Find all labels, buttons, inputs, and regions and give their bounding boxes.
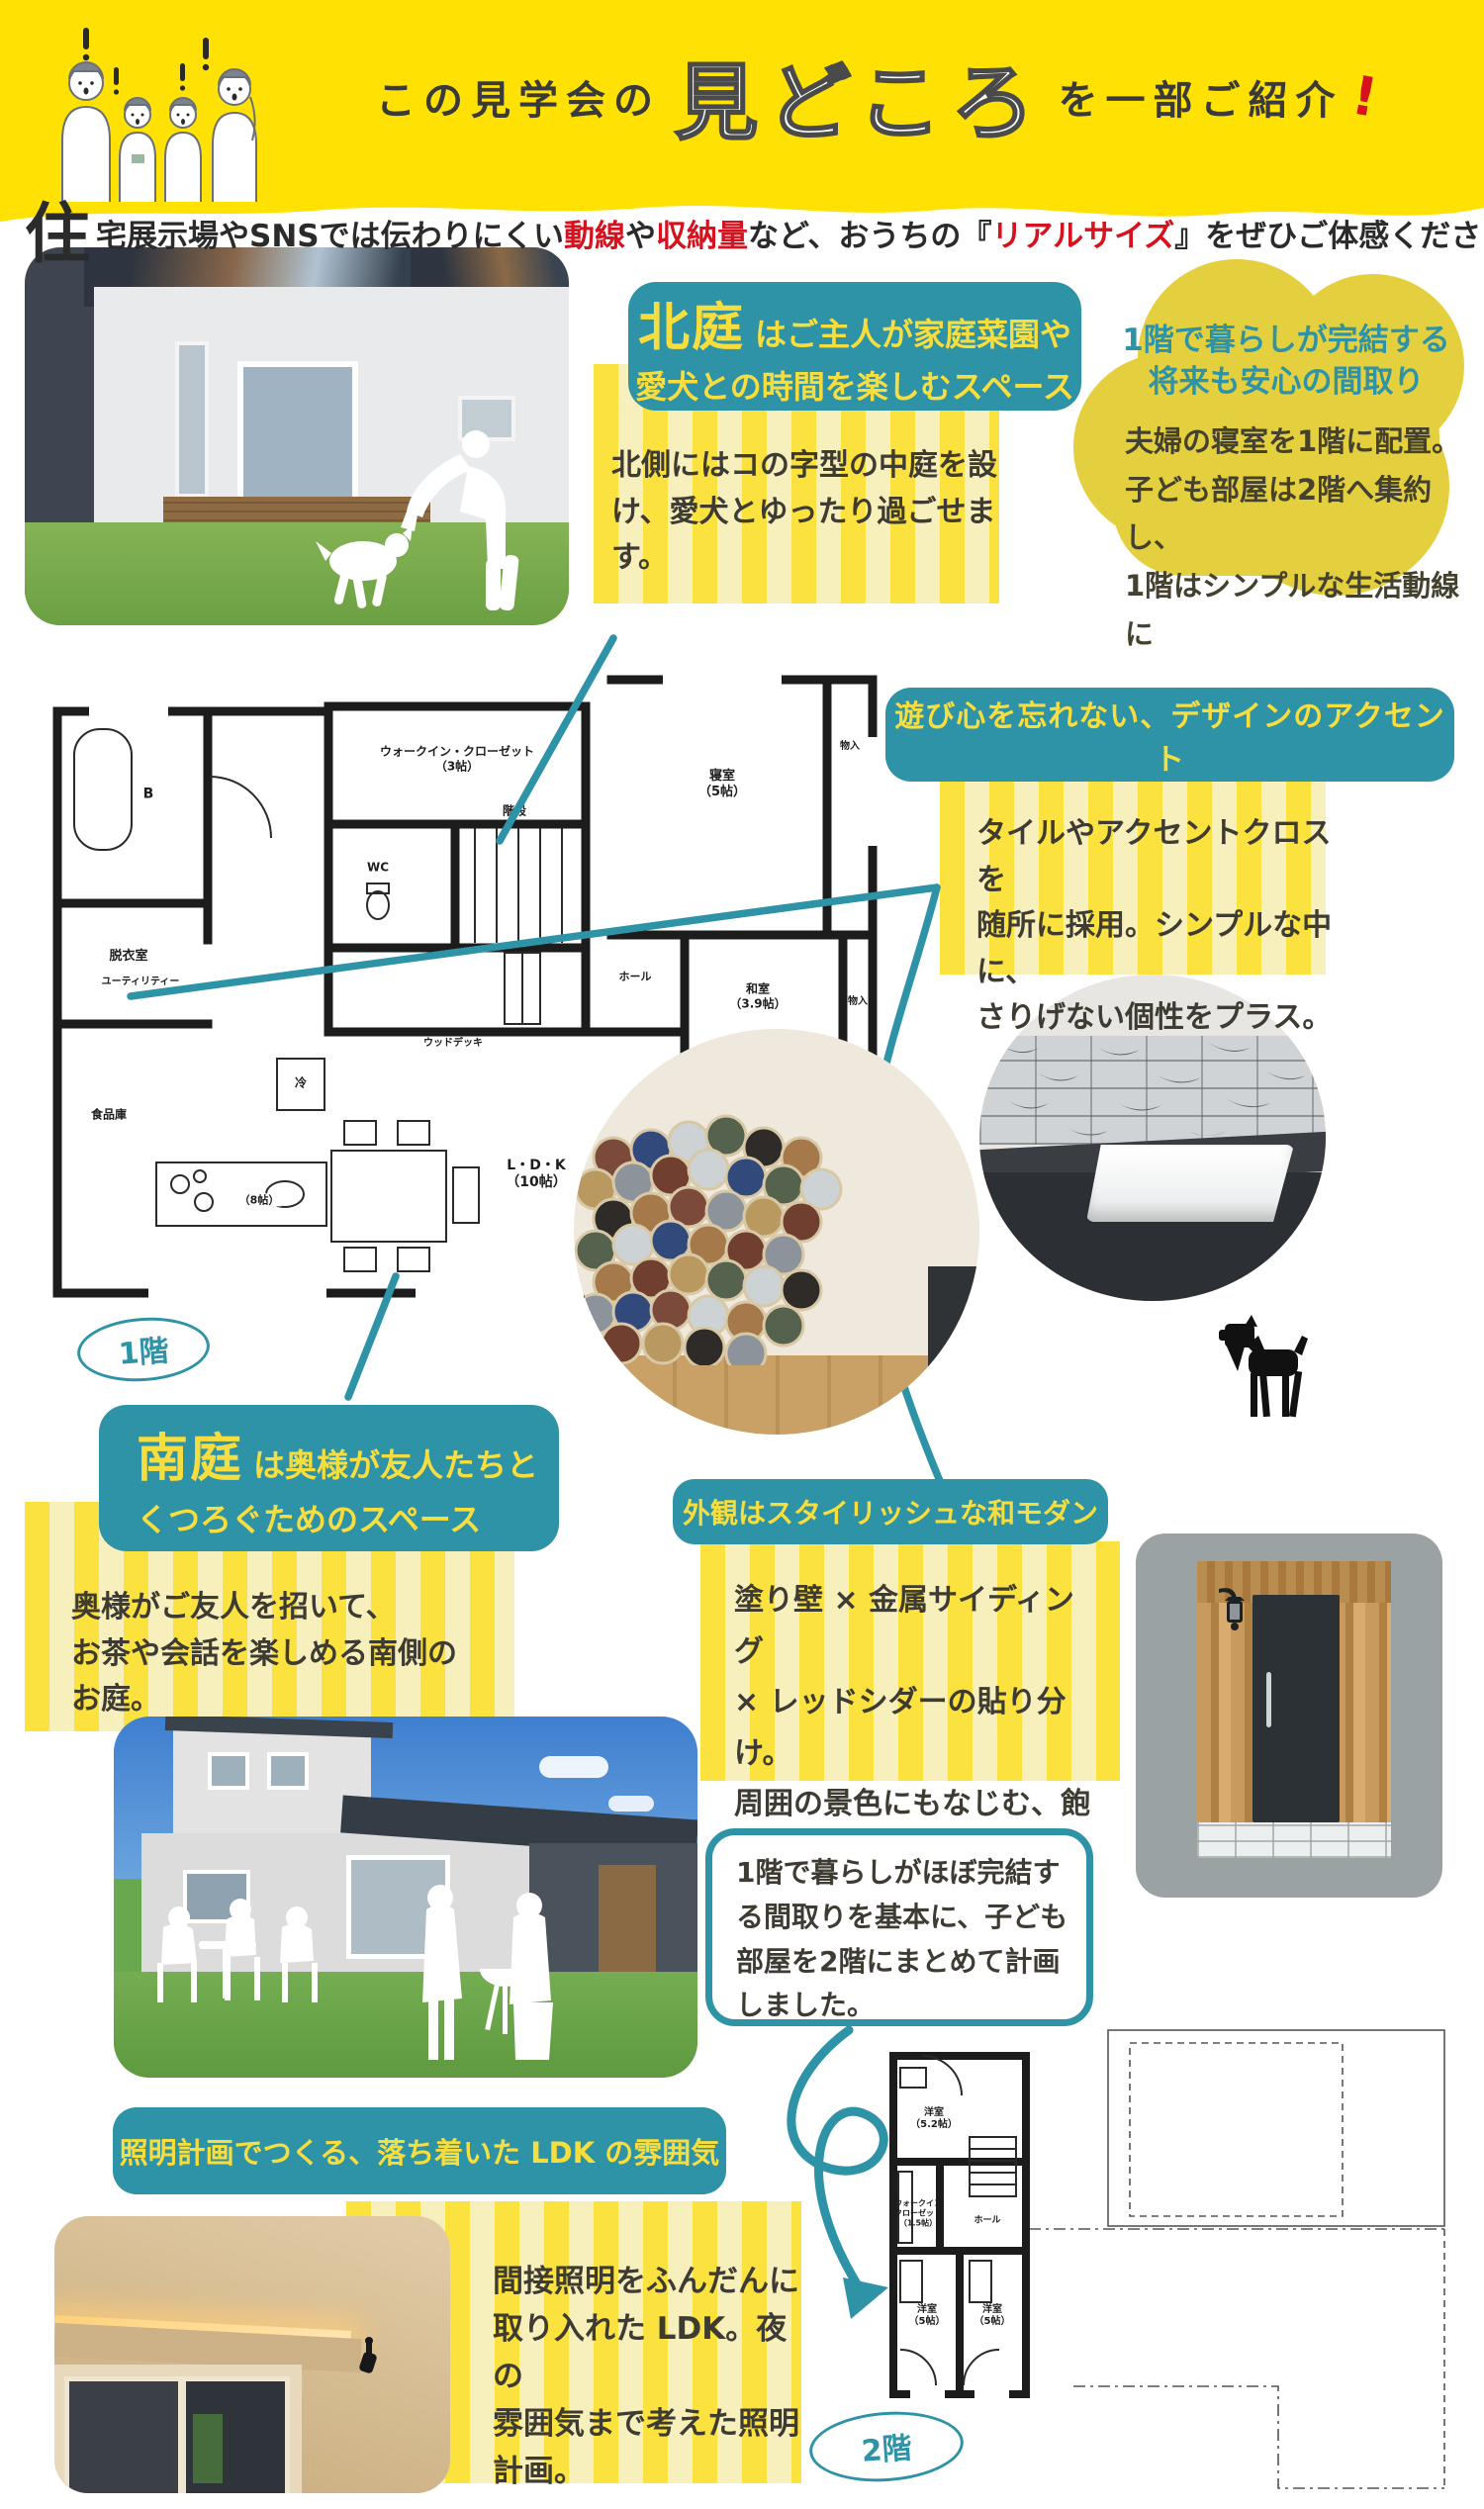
flyer-page: 1階で暮らしが完結する 将来も安心の間取り 夫婦の寝室を1階に配置。 子ども部屋…	[0, 0, 1484, 2509]
ldk-photo	[54, 2216, 450, 2493]
north-garden-title-line2: 愛犬との時間を楽しむスペース	[635, 362, 1074, 408]
room-label: ウォークイン クローゼット （1.5帖）	[894, 2198, 942, 2227]
room-label: ユーティリティー	[102, 976, 180, 988]
window	[267, 1752, 309, 1790]
room-label: ウォークイン・クローゼット （3帖）	[380, 744, 534, 773]
mosaic-tile-photo	[574, 1029, 979, 1435]
intro-line: 住 宅展示場やSNSでは伝わりにくい動線や収納量など、おうちの『リアルサイズ』を…	[25, 181, 1479, 270]
floor2-badge-label: 2階	[860, 2423, 913, 2469]
cloud-small	[608, 1796, 654, 1812]
intro-bracket-close: 』	[1174, 219, 1205, 254]
header-title: この見学会の 見どころ を一部ご紹介 !	[376, 30, 1474, 163]
window	[208, 1752, 249, 1790]
callout-exterior: 外観はスタイリッシュな和モダン	[673, 1479, 1108, 1544]
accent-title: 遊び心を忘れない、デザインのアクセント	[885, 692, 1454, 779]
room-label: 洋室 （5.2帖）	[910, 2107, 958, 2131]
cloud-title: 1階で暮らしが完結する 将来も安心の間取り	[1103, 321, 1469, 404]
room-label: 冷	[295, 1076, 307, 1091]
room-label: B	[143, 786, 154, 802]
callout-accent: 遊び心を忘れない、デザインのアクセント	[885, 688, 1454, 782]
north-garden-title-rest: はご主人が家庭菜園や	[755, 310, 1071, 355]
fan-tiles	[574, 1029, 979, 1365]
wood-floor	[574, 1355, 979, 1435]
intro-red3: リアルサイズ	[991, 219, 1174, 254]
intro-seg4: をぜひご体感ください	[1205, 219, 1484, 254]
room-label: L・D・K （10帖）	[506, 1158, 566, 1191]
floorplan-2f: 洋室 （5.2帖） ウォークイン クローゼット （1.5帖） ホール 洋室 （5…	[871, 2023, 1484, 2509]
spotlight-icon	[351, 2335, 387, 2378]
room-label: ホール	[619, 970, 652, 982]
person-dog-silhouette	[312, 420, 549, 618]
north-garden-keyword: 北庭	[638, 286, 745, 360]
header-highlight: 見どころ	[675, 37, 1044, 156]
intro-red2: 収納量	[656, 219, 748, 254]
north-garden-body: 北側にはコの字型の中庭を設 け、愛犬とゆったり過ごせま す。	[611, 443, 997, 582]
south-garden-title-rest: は奥様が友人たちと	[253, 1440, 538, 1486]
callout-south-line1: 南庭 は奥様が友人たちと	[137, 1417, 538, 1491]
plan-note-bubble: 1階で暮らしがほぼ完結す る間取りを基本に、子ども 部屋を2階にまとめて計画 し…	[705, 1828, 1093, 2026]
room-label: WC	[367, 861, 389, 876]
intro-seg3: など、おうちの	[748, 219, 961, 254]
window-glass	[64, 2376, 183, 2493]
plan-note-text: 1階で暮らしがほぼ完結す る間取りを基本に、子ども 部屋を2階にまとめて計画 し…	[712, 1835, 1086, 2028]
room-label: （8帖）	[237, 1193, 282, 1206]
schnauzer-silhouette-icon	[1219, 1314, 1318, 1428]
south-garden-photo	[114, 1717, 697, 2078]
exterior-title: 外観はスタイリッシュな和モダン	[683, 1492, 1098, 1532]
intro-sentence: 宅展示場やSNSでは伝わりにくい動線や収納量など、おうちの『リアルサイズ』をぜひ…	[96, 211, 1484, 255]
header-suffix: を一部ご紹介	[1058, 68, 1343, 126]
sink-basin	[1086, 1145, 1294, 1222]
south-garden-title-line2: くつろぐためのスペース	[137, 1495, 481, 1540]
room-label: ウッドデッキ	[423, 1038, 483, 1050]
room-label: 食品庫	[91, 1108, 127, 1123]
callout-north-line1: 北庭 はご主人が家庭菜園や	[638, 286, 1071, 360]
room-label: 洋室 （5帖）	[974, 2304, 1011, 2328]
intro-bracket-open: 『	[961, 219, 991, 254]
room-label: 洋室 （5帖）	[909, 2304, 946, 2328]
room-label: 物入	[848, 996, 868, 1008]
intro-seg2: や	[625, 219, 656, 254]
entrance-photo	[1136, 1533, 1442, 1898]
south-garden-body: 奥様がご友人を招いて、 お茶や会話を楽しめる南側の お庭。	[71, 1585, 487, 1723]
callout-north-garden: 北庭 はご主人が家庭菜園や 愛犬との時間を楽しむスペース	[628, 282, 1081, 411]
floor1-badge-label: 1階	[117, 1326, 170, 1372]
intro-dropcap: 住	[25, 181, 90, 276]
window	[175, 341, 209, 498]
lighting-body: 間接照明をふんだんに 取り入れた LDK。夜の 雰囲気まで考えた照明 計画。	[493, 2258, 799, 2495]
callout-lighting: 照明計画でつくる、落ち着いた LDK の雰囲気	[113, 2107, 726, 2194]
people-silhouettes	[114, 1880, 697, 2078]
room-label: ホール	[974, 2216, 1000, 2227]
lighting-title: 照明計画でつくる、落ち着いた LDK の雰囲気	[120, 2130, 720, 2172]
family-illustration	[54, 22, 312, 205]
lantern-icon	[1213, 1587, 1256, 1642]
intro-red1: 動線	[564, 219, 625, 254]
cabinet	[928, 1266, 979, 1385]
room-label: 物入	[840, 741, 860, 753]
floorplan-2f-drawing	[871, 2023, 1484, 2509]
header-bang: !	[1347, 63, 1382, 129]
cloud-body: 夫婦の寝室を1階に配置。 子ども部屋は2階へ集約し、 1階はシンプルな生活動線に	[1125, 418, 1481, 659]
door-handle	[1266, 1672, 1271, 1727]
cloud-small	[539, 1756, 608, 1778]
tile-wave-marks	[979, 1036, 1326, 1145]
callout-south-garden: 南庭 は奥様が友人たちと くつろぐためのスペース	[99, 1405, 559, 1551]
room-label: 脱衣室	[109, 949, 147, 965]
courtyard-photo	[25, 247, 569, 625]
floor1-badge: 1階	[75, 1313, 212, 1385]
header-prefix: この見学会の	[376, 68, 661, 126]
tile-floor	[1197, 1822, 1391, 1858]
accent-body: タイルやアクセントクロスを 随所に採用。シンプルな中に、 さりげない個性をプラス…	[976, 811, 1333, 1042]
room-label: 寝室 （5帖）	[698, 769, 746, 800]
greenery-glimpse	[193, 2414, 223, 2483]
cloud-callout: 1階で暮らしが完結する 将来も安心の間取り 夫婦の寝室を1階に配置。 子ども部屋…	[1083, 259, 1484, 601]
room-label: 階段	[501, 804, 528, 819]
intro-seg1: 宅展示場やSNSでは伝わりにくい	[96, 219, 564, 254]
south-garden-keyword: 南庭	[137, 1417, 243, 1491]
room-label: 和室 （3.9帖）	[729, 981, 786, 1010]
